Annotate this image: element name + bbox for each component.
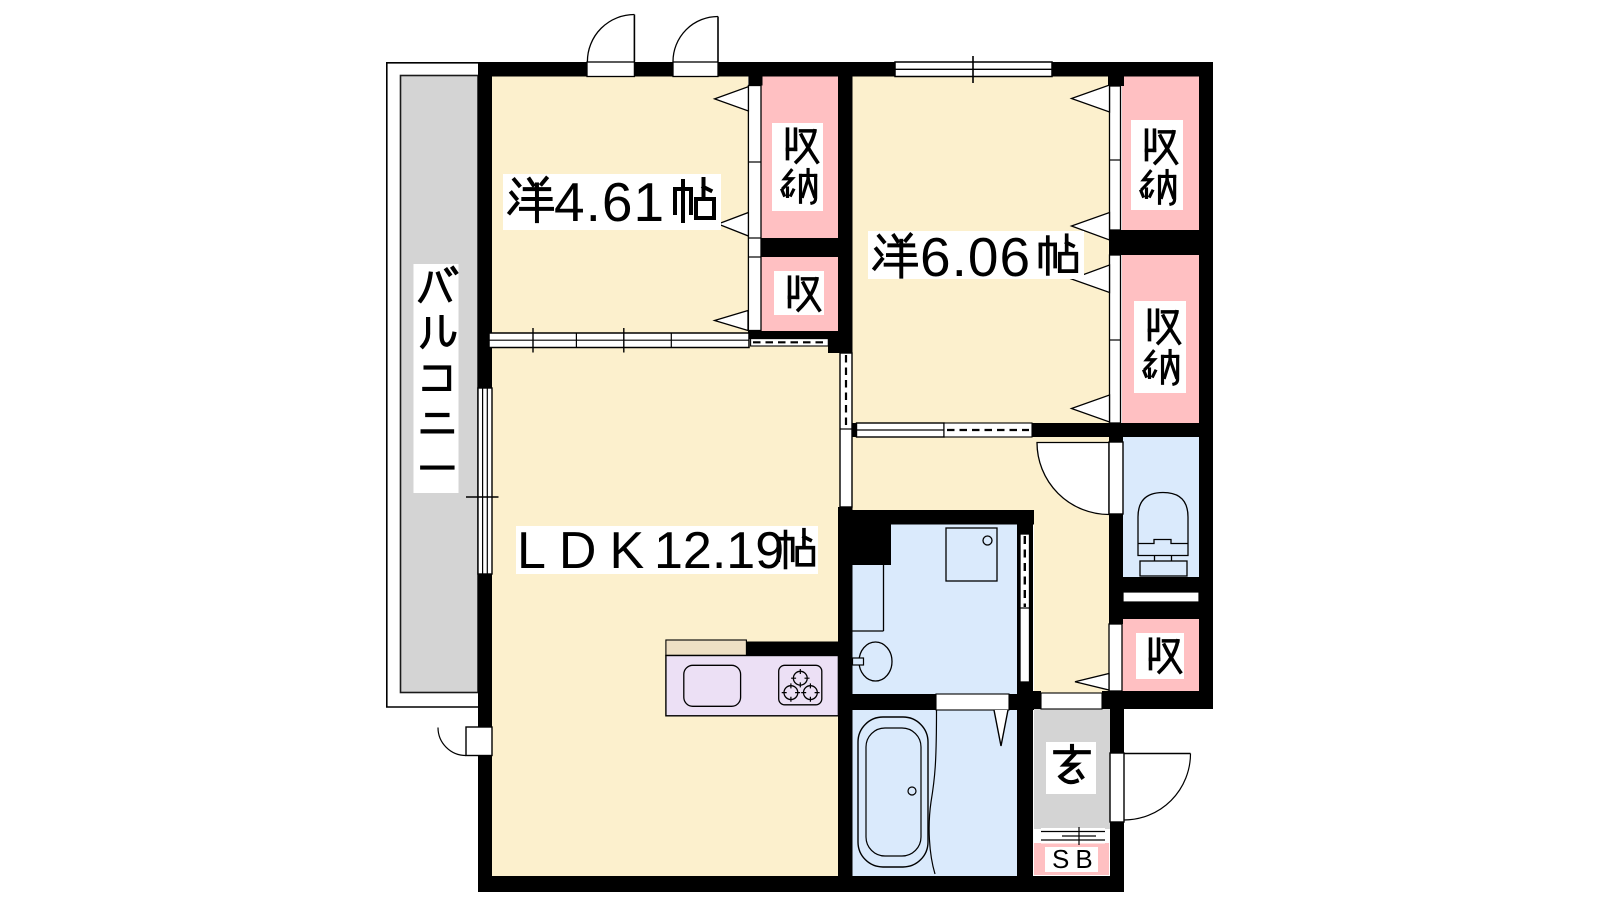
svg-text:SB: SB [1052,844,1099,874]
svg-text:4.61: 4.61 [554,171,665,233]
svg-text:LDK: LDK [517,522,657,580]
svg-text:6.06: 6.06 [920,226,1031,288]
svg-text:12.19: 12.19 [654,522,784,580]
